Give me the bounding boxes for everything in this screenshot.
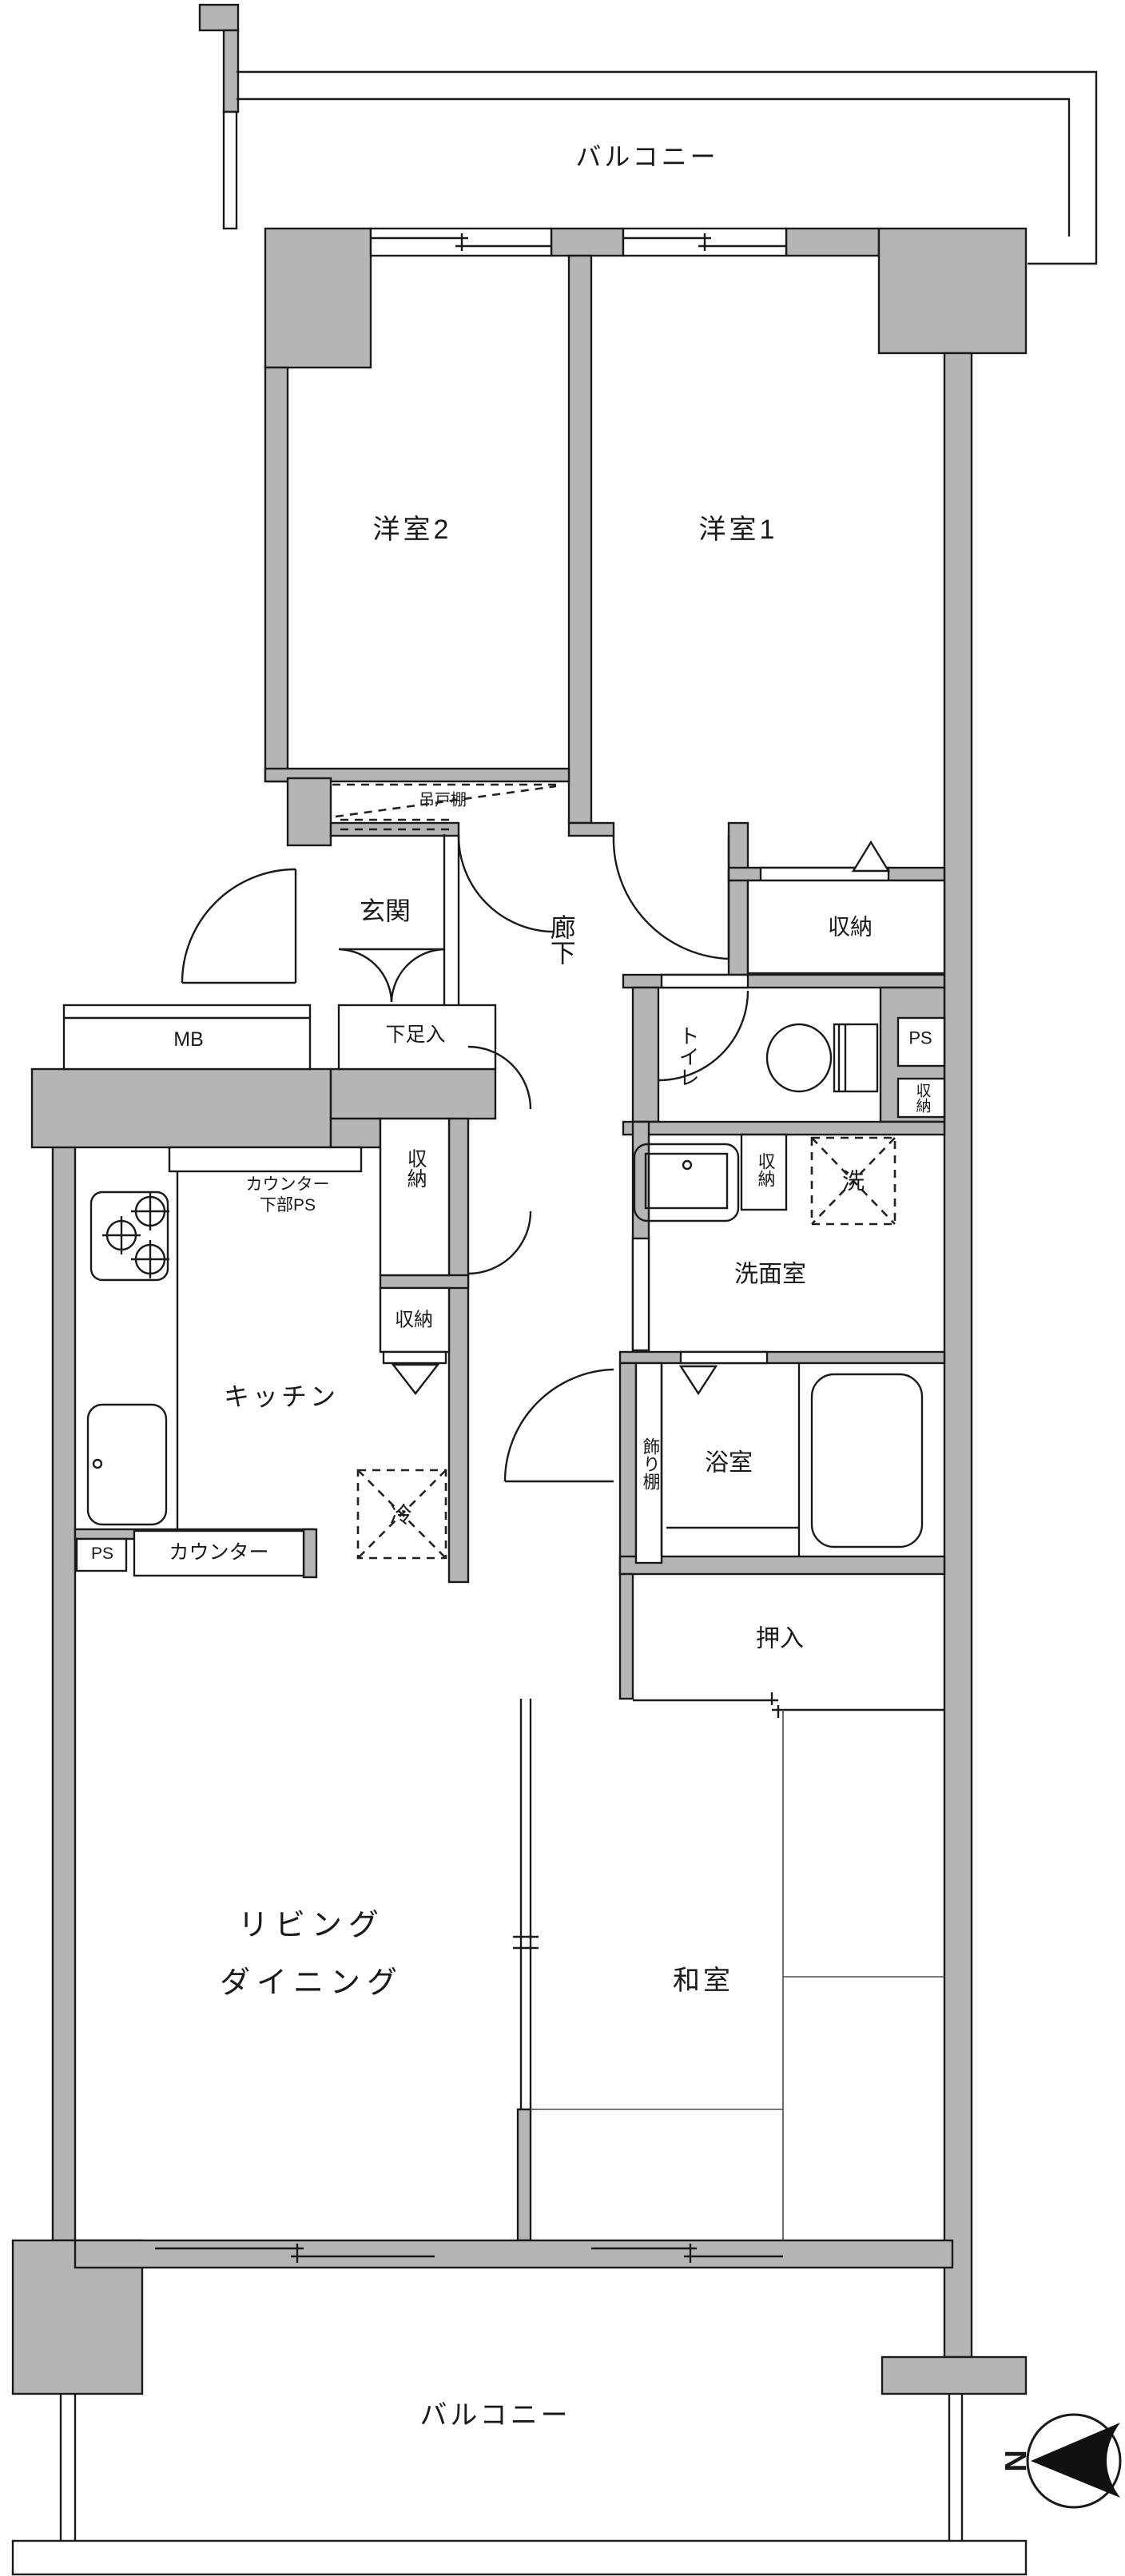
bathtub (812, 1374, 922, 1547)
wall-counter-stub (304, 1529, 316, 1577)
washroom-sink (634, 1144, 738, 1221)
label-hanging-cupboard: 吊戸棚 (419, 794, 467, 811)
label-closet-small: 収納 (912, 1083, 928, 1113)
label-closet-kitchen: 収納 (395, 1310, 433, 1330)
wall-bottom (75, 2240, 952, 2268)
label-compass-north: N (997, 2450, 1029, 2471)
bath-fold-triangle (681, 1366, 716, 1393)
toilet-tank (834, 1024, 877, 1091)
label-shoe-cabinet: 下足入 (385, 1025, 445, 1046)
label-bedroom2: 洋室2 (373, 516, 452, 545)
kitchen-closet-fold-triangle (393, 1365, 438, 1393)
compass-needle-icon (1031, 2423, 1120, 2498)
wall-left-lower (53, 1144, 75, 2240)
label-living-2: ダイニング (220, 1969, 403, 2001)
kitchen-sink (88, 1405, 166, 1525)
balcony-bottom-rail (13, 2541, 1026, 2574)
label-entrance: 玄関 (360, 900, 411, 928)
entrance-door-arc (182, 869, 296, 983)
label-counter: カウンター (169, 1543, 268, 1564)
label-balcony-bottom: バルコニー (419, 2402, 570, 2431)
toilet-bowl (767, 1024, 831, 1091)
wall-left-upper (265, 368, 288, 781)
wall-washitsu-west (518, 2109, 531, 2240)
compass (1028, 2415, 1120, 2507)
counter-ps-strip (169, 1147, 361, 1171)
wall-bottom-right-block (882, 2357, 1026, 2394)
label-washroom: 洗面室 (734, 1262, 806, 1288)
label-living-1: リビング (238, 1911, 385, 1943)
label-meter-box: MB (173, 1030, 204, 1051)
label-toilet: トイレ (676, 1025, 698, 1087)
walls (13, 5, 1026, 2394)
wall-closet-left (729, 881, 748, 986)
wall-shelf-west (620, 1363, 636, 1574)
ld-door-arc (505, 1369, 614, 1481)
label-washing-machine: 洗 (842, 1169, 865, 1192)
label-closet-tall: 収納 (403, 1148, 424, 1188)
wall-kitchen-east (449, 1119, 468, 1582)
bedroom2-door-arc (459, 836, 555, 932)
closet-fold-triangle (853, 842, 888, 871)
label-counter-lower-ps-2: 下部PS (260, 1198, 316, 1215)
label-display-shelf: 飾り棚 (639, 1437, 658, 1490)
label-oshiire: 押入 (756, 1627, 804, 1652)
wall-top-mid (551, 229, 623, 256)
closet-tall-box (380, 1119, 449, 1275)
toilet-door-arc (658, 991, 748, 1080)
label-counter-lower-ps-1: カウンター (246, 1177, 330, 1195)
wall-toilet-west (633, 988, 658, 1122)
wall-hall-top (569, 823, 614, 836)
shoe-door-arc-right (392, 949, 444, 1002)
duct-top (200, 5, 238, 30)
wall-kitchen-ne (331, 1119, 380, 1147)
label-balcony-top: バルコニー (575, 146, 718, 173)
wall-top-right-block (879, 229, 1026, 353)
washroom-faucet (683, 1161, 691, 1169)
wall-entrance-step (288, 778, 331, 845)
wall-bath-bottom (620, 1556, 944, 1574)
closet-kitchen-slit (384, 1352, 446, 1363)
shoe-door-arc-left (339, 949, 392, 1002)
wall-oshiire-west (620, 1574, 633, 1699)
wall-closet-column-mid (380, 1275, 468, 1288)
tatami-lines (531, 1710, 944, 2240)
label-closet-washroom: 収納 (754, 1152, 773, 1187)
wall-right (944, 353, 972, 2357)
label-ps-kitchen: PS (91, 1546, 113, 1564)
floor-plan: バルコニー 洋室2 洋室1 吊戸棚 玄関 廊下 下足入 収納 PS 収納 トイレ… (0, 0, 1125, 2576)
wall-top-left-block (265, 229, 371, 368)
duct-stem (224, 30, 238, 112)
label-japanese-room: 和室 (673, 1967, 733, 1996)
label-ps-upper: PS (908, 1031, 932, 1049)
label-closet-bedroom1: 収納 (828, 915, 873, 938)
washroom-door-slit (633, 1238, 649, 1350)
wall-mb-block (32, 1069, 331, 1147)
toilet-door-opening (662, 975, 748, 988)
label-kitchen: キッチン (224, 1386, 339, 1413)
wall-genkan-top (331, 823, 459, 836)
label-refrigerator: 冷 (390, 1503, 412, 1526)
label-bedroom1: 洋室1 (699, 516, 778, 545)
closet-column-arc-lower (468, 1211, 531, 1274)
wall-washroom-bottom (620, 1352, 944, 1363)
kitchen-faucet (93, 1460, 101, 1468)
wall-washroom-top (623, 1122, 944, 1135)
wall-bedroom-divider (569, 256, 591, 823)
wall-top-right-seg (786, 229, 879, 256)
label-bathroom: 浴室 (705, 1451, 753, 1477)
floor-plan-drawing (0, 0, 1125, 2576)
wall-under-shoe (331, 1069, 495, 1119)
bedroom1-door-arc (614, 836, 729, 959)
bath-door-slit (681, 1352, 767, 1363)
label-hallway: 廊下 (544, 914, 571, 965)
balcony-left-cap (224, 112, 237, 229)
